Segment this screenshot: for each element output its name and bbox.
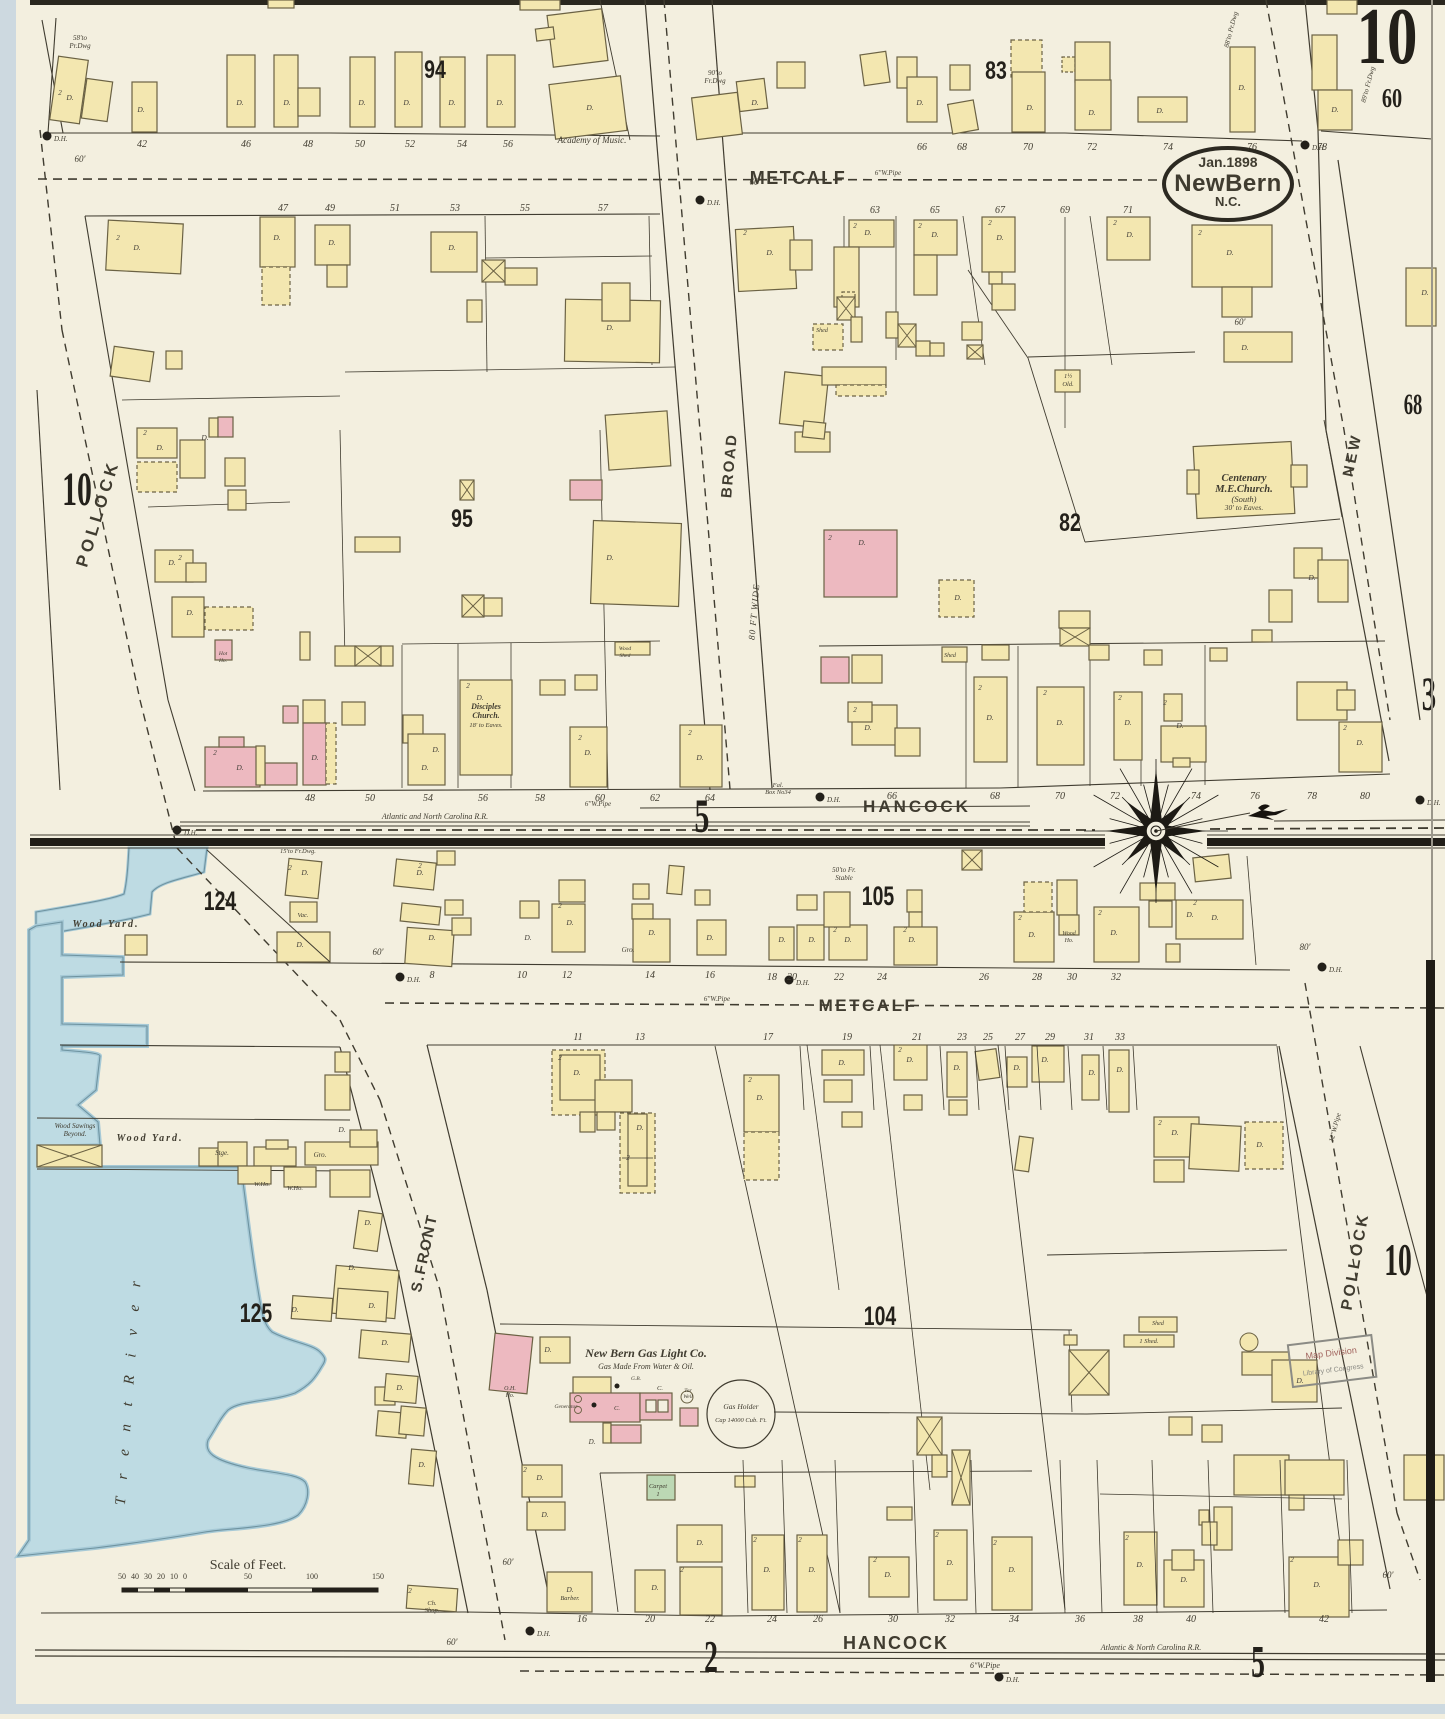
svg-text:100: 100 bbox=[306, 1572, 318, 1581]
svg-text:D.: D. bbox=[915, 98, 923, 107]
svg-text:D.: D. bbox=[583, 748, 591, 757]
svg-text:D.: D. bbox=[543, 1345, 551, 1354]
svg-text:28: 28 bbox=[1032, 972, 1042, 983]
svg-text:60': 60' bbox=[447, 1637, 459, 1647]
svg-text:76: 76 bbox=[1250, 791, 1260, 802]
svg-text:Ho.: Ho. bbox=[1064, 938, 1074, 944]
svg-text:D.H.: D.H. bbox=[1328, 966, 1343, 974]
svg-text:Carpet: Carpet bbox=[649, 1483, 667, 1490]
svg-text:D.: D. bbox=[857, 538, 865, 547]
svg-text:31: 31 bbox=[1083, 1032, 1094, 1043]
svg-text:D.: D. bbox=[1007, 1565, 1015, 1574]
svg-text:2: 2 bbox=[688, 729, 692, 737]
svg-text:32: 32 bbox=[944, 1614, 955, 1625]
svg-text:2: 2 bbox=[988, 219, 992, 227]
svg-text:19: 19 bbox=[842, 1032, 852, 1043]
svg-text:50: 50 bbox=[355, 139, 365, 150]
svg-text:2: 2 bbox=[898, 1046, 902, 1054]
svg-text:D.: D. bbox=[295, 940, 303, 949]
svg-text:2: 2 bbox=[918, 222, 922, 230]
svg-text:2: 2 bbox=[680, 1566, 684, 1574]
svg-text:2: 2 bbox=[833, 926, 837, 934]
svg-text:D.: D. bbox=[395, 1383, 403, 1392]
svg-text:70: 70 bbox=[1055, 791, 1065, 802]
svg-text:Gro.: Gro. bbox=[622, 946, 635, 954]
svg-text:D.H.: D.H. bbox=[406, 976, 421, 984]
svg-text:40: 40 bbox=[131, 1572, 139, 1581]
svg-text:D.: D. bbox=[945, 1558, 953, 1567]
svg-text:Ch.: Ch. bbox=[427, 1600, 437, 1607]
svg-text:1½: 1½ bbox=[1064, 373, 1072, 380]
svg-text:50: 50 bbox=[365, 793, 375, 804]
svg-text:0: 0 bbox=[183, 1572, 187, 1581]
svg-text:40: 40 bbox=[1186, 1614, 1196, 1625]
svg-text:38: 38 bbox=[1132, 1614, 1143, 1625]
svg-text:Pr.Dwg: Pr.Dwg bbox=[68, 42, 91, 50]
svg-text:Well: Well bbox=[683, 1394, 693, 1400]
svg-text:D.: D. bbox=[1115, 1065, 1123, 1074]
svg-text:48: 48 bbox=[303, 139, 313, 150]
svg-text:66: 66 bbox=[887, 791, 897, 802]
svg-text:HANCOCK: HANCOCK bbox=[843, 1633, 949, 1653]
svg-text:66: 66 bbox=[917, 142, 927, 153]
svg-text:D.: D. bbox=[1210, 913, 1218, 922]
svg-text:D.: D. bbox=[762, 1565, 770, 1574]
svg-text:Shed: Shed bbox=[1152, 1321, 1165, 1327]
svg-text:D.: D. bbox=[1330, 105, 1338, 114]
svg-text:60': 60' bbox=[1383, 1570, 1395, 1580]
svg-text:30: 30 bbox=[1066, 972, 1077, 983]
svg-text:D.: D. bbox=[1255, 1140, 1263, 1149]
svg-text:2: 2 bbox=[743, 229, 747, 237]
svg-text:58'to: 58'to bbox=[73, 34, 87, 42]
svg-text:D.: D. bbox=[1355, 738, 1363, 747]
svg-text:69: 69 bbox=[1060, 205, 1070, 216]
svg-text:Ho.: Ho. bbox=[218, 658, 227, 664]
svg-text:60': 60' bbox=[75, 154, 87, 164]
svg-text:D.: D. bbox=[1055, 718, 1063, 727]
svg-text:Shed: Shed bbox=[816, 328, 829, 334]
svg-text:57: 57 bbox=[598, 203, 609, 214]
svg-text:2: 2 bbox=[1198, 229, 1202, 237]
svg-text:D.: D. bbox=[605, 553, 613, 562]
svg-text:D.: D. bbox=[357, 98, 365, 107]
svg-text:D.: D. bbox=[420, 763, 428, 772]
svg-text:2: 2 bbox=[903, 926, 907, 934]
svg-text:D.: D. bbox=[750, 98, 758, 107]
svg-text:2: 2 bbox=[1125, 1534, 1129, 1542]
svg-text:60: 60 bbox=[595, 793, 605, 804]
svg-text:1 Shed.: 1 Shed. bbox=[1139, 1338, 1159, 1345]
svg-text:3: 3 bbox=[1422, 668, 1436, 721]
svg-text:68: 68 bbox=[990, 791, 1000, 802]
svg-text:D.: D. bbox=[1155, 106, 1163, 115]
svg-text:Academy of Music.: Academy of Music. bbox=[557, 135, 627, 145]
svg-text:D.: D. bbox=[695, 1538, 703, 1547]
svg-text:D.: D. bbox=[65, 93, 73, 102]
svg-text:2: 2 bbox=[178, 554, 182, 562]
svg-text:D.: D. bbox=[1295, 1376, 1303, 1385]
svg-text:D.: D. bbox=[272, 233, 280, 242]
svg-text:20: 20 bbox=[645, 1614, 655, 1625]
svg-text:Box No34: Box No34 bbox=[765, 789, 792, 796]
svg-text:Centenary: Centenary bbox=[1222, 473, 1267, 484]
svg-text:Disciples: Disciples bbox=[470, 702, 501, 711]
svg-text:30: 30 bbox=[144, 1572, 152, 1581]
svg-text:D.: D. bbox=[807, 1565, 815, 1574]
svg-text:Wood Sawings: Wood Sawings bbox=[55, 1122, 96, 1130]
svg-text:D.: D. bbox=[650, 1583, 658, 1592]
svg-text:80': 80' bbox=[1300, 942, 1312, 952]
svg-text:2: 2 bbox=[58, 89, 62, 97]
svg-text:34: 34 bbox=[1008, 1614, 1019, 1625]
svg-text:2: 2 bbox=[798, 1536, 802, 1544]
svg-text:2: 2 bbox=[1158, 1119, 1162, 1127]
svg-text:90'to: 90'to bbox=[708, 69, 722, 77]
svg-text:D.: D. bbox=[1027, 930, 1035, 939]
svg-text:13: 13 bbox=[635, 1032, 645, 1043]
svg-text:30: 30 bbox=[887, 1614, 898, 1625]
svg-text:D.: D. bbox=[363, 1218, 371, 1227]
svg-text:D.: D. bbox=[588, 1438, 596, 1446]
svg-text:D.H.: D.H. bbox=[1426, 799, 1441, 807]
svg-text:Scale of Feet.: Scale of Feet. bbox=[210, 1558, 287, 1573]
svg-text:Wood Yard.: Wood Yard. bbox=[116, 1133, 183, 1144]
svg-text:48: 48 bbox=[305, 793, 315, 804]
svg-text:14: 14 bbox=[645, 970, 655, 981]
svg-text:26: 26 bbox=[979, 972, 989, 983]
svg-text:G.B.: G.B. bbox=[631, 1376, 641, 1382]
svg-text:D.: D. bbox=[447, 98, 455, 107]
svg-text:2: 2 bbox=[853, 222, 857, 230]
svg-text:22: 22 bbox=[834, 972, 844, 983]
svg-text:D.H.: D.H. bbox=[53, 135, 68, 143]
svg-text:W.Ho.: W.Ho. bbox=[287, 1185, 303, 1192]
svg-text:D.: D. bbox=[167, 558, 175, 567]
svg-text:D.: D. bbox=[572, 1068, 580, 1077]
svg-text:105: 105 bbox=[862, 881, 894, 911]
svg-text:N.C.: N.C. bbox=[1215, 194, 1241, 209]
svg-text:D.: D. bbox=[1170, 1128, 1178, 1137]
svg-text:D.: D. bbox=[1125, 230, 1133, 239]
svg-text:D.: D. bbox=[1135, 1560, 1143, 1569]
svg-text:Generator: Generator bbox=[555, 1404, 579, 1410]
svg-text:D.: D. bbox=[337, 1125, 345, 1134]
svg-text:D.: D. bbox=[200, 433, 208, 442]
svg-text:16: 16 bbox=[577, 1614, 587, 1625]
svg-text:56: 56 bbox=[478, 793, 488, 804]
svg-text:C.: C. bbox=[614, 1405, 620, 1412]
svg-text:D.: D. bbox=[327, 238, 335, 247]
svg-text:NewBern: NewBern bbox=[1174, 170, 1282, 197]
svg-text:2: 2 bbox=[408, 1587, 412, 1595]
svg-text:D.: D. bbox=[475, 693, 483, 702]
svg-text:Church.: Church. bbox=[472, 711, 499, 720]
svg-text:D.: D. bbox=[1240, 343, 1248, 352]
svg-text:76: 76 bbox=[1247, 142, 1257, 153]
svg-text:29: 29 bbox=[1045, 1032, 1055, 1043]
svg-text:20: 20 bbox=[157, 1572, 165, 1581]
svg-text:82: 82 bbox=[1059, 509, 1081, 537]
svg-text:2: 2 bbox=[1290, 1556, 1294, 1564]
svg-text:D.: D. bbox=[647, 928, 655, 937]
svg-text:D.: D. bbox=[1179, 1575, 1187, 1584]
svg-text:10: 10 bbox=[170, 1572, 178, 1581]
svg-text:D.: D. bbox=[402, 98, 410, 107]
svg-text:22: 22 bbox=[705, 1614, 715, 1625]
svg-text:50: 50 bbox=[244, 1572, 252, 1581]
svg-text:Gas Made From Water & Oil.: Gas Made From Water & Oil. bbox=[598, 1362, 694, 1371]
svg-text:D.: D. bbox=[1420, 288, 1428, 297]
svg-text:68: 68 bbox=[957, 142, 967, 153]
svg-text:D.: D. bbox=[155, 443, 163, 452]
svg-text:Fal.: Fal. bbox=[772, 782, 784, 789]
svg-text:70: 70 bbox=[1023, 142, 1033, 153]
svg-text:D.: D. bbox=[282, 98, 290, 107]
svg-text:18' to Eaves.: 18' to Eaves. bbox=[469, 722, 503, 729]
svg-text:D.: D. bbox=[1225, 248, 1233, 257]
svg-text:D.: D. bbox=[863, 723, 871, 732]
svg-text:D.: D. bbox=[367, 1301, 375, 1310]
svg-text:63: 63 bbox=[870, 205, 880, 216]
svg-text:18: 18 bbox=[767, 972, 777, 983]
svg-text:78: 78 bbox=[1317, 142, 1327, 153]
svg-text:54: 54 bbox=[423, 793, 433, 804]
svg-text:D.: D. bbox=[930, 230, 938, 239]
svg-text:D.: D. bbox=[310, 753, 318, 762]
svg-text:Shop.: Shop. bbox=[425, 1607, 440, 1614]
svg-text:78: 78 bbox=[1307, 791, 1317, 802]
svg-text:23: 23 bbox=[957, 1032, 967, 1043]
svg-text:60': 60' bbox=[1235, 317, 1247, 327]
svg-text:16: 16 bbox=[705, 970, 715, 981]
svg-text:D.: D. bbox=[1175, 721, 1183, 730]
svg-text:55: 55 bbox=[520, 203, 530, 214]
svg-text:D.: D. bbox=[523, 933, 531, 942]
svg-text:Beyond.: Beyond. bbox=[64, 1130, 87, 1138]
svg-text:10: 10 bbox=[62, 462, 92, 516]
svg-text:2: 2 bbox=[1018, 914, 1022, 922]
svg-text:12: 12 bbox=[562, 970, 572, 981]
svg-text:Shed: Shed bbox=[944, 653, 957, 659]
svg-text:2: 2 bbox=[466, 682, 470, 690]
svg-text:Wood: Wood bbox=[1062, 931, 1076, 937]
svg-text:D.: D. bbox=[235, 763, 243, 772]
svg-text:D.: D. bbox=[540, 1510, 548, 1519]
svg-text:60': 60' bbox=[373, 947, 385, 957]
svg-text:62: 62 bbox=[650, 793, 660, 804]
svg-text:6"W.Pipe: 6"W.Pipe bbox=[875, 169, 901, 177]
svg-text:D.: D. bbox=[1087, 108, 1095, 117]
svg-text:D.H.: D.H. bbox=[183, 829, 198, 837]
svg-text:D.: D. bbox=[136, 105, 144, 114]
svg-text:36: 36 bbox=[1074, 1614, 1085, 1625]
svg-text:D.: D. bbox=[347, 1263, 355, 1272]
svg-text:D.: D. bbox=[427, 933, 435, 942]
svg-text:New Bern Gas Light Co.: New Bern Gas Light Co. bbox=[584, 1346, 707, 1360]
svg-text:71: 71 bbox=[1123, 205, 1133, 216]
svg-text:2: 2 bbox=[828, 534, 832, 542]
svg-text:Atlantic & North Carolina R.R.: Atlantic & North Carolina R.R. bbox=[1100, 1643, 1202, 1652]
svg-text:D.: D. bbox=[290, 1305, 298, 1314]
svg-text:2: 2 bbox=[143, 429, 147, 437]
svg-text:Old.: Old. bbox=[1062, 381, 1074, 388]
svg-text:D.: D. bbox=[807, 935, 815, 944]
svg-text:D.: D. bbox=[777, 935, 785, 944]
svg-text:2: 2 bbox=[748, 1076, 752, 1084]
svg-text:64: 64 bbox=[705, 793, 715, 804]
svg-text:D.: D. bbox=[705, 933, 713, 942]
svg-text:50'to Fr.: 50'to Fr. bbox=[832, 866, 856, 874]
svg-text:2: 2 bbox=[753, 1536, 757, 1544]
svg-text:D.: D. bbox=[883, 1570, 891, 1579]
svg-text:68: 68 bbox=[1404, 389, 1423, 421]
svg-text:2: 2 bbox=[558, 902, 562, 910]
svg-text:D.: D. bbox=[585, 103, 593, 112]
svg-text:6"W.Pipe: 6"W.Pipe bbox=[970, 1661, 1000, 1670]
svg-text:Wood: Wood bbox=[619, 646, 632, 652]
svg-text:2: 2 bbox=[1043, 689, 1047, 697]
svg-text:50: 50 bbox=[118, 1572, 126, 1581]
svg-text:83: 83 bbox=[985, 57, 1007, 85]
svg-text:D.: D. bbox=[447, 243, 455, 252]
svg-text:D.: D. bbox=[635, 1123, 643, 1132]
svg-text:26: 26 bbox=[813, 1614, 823, 1625]
svg-text:60: 60 bbox=[1382, 84, 1402, 113]
svg-text:Jan.1898: Jan.1898 bbox=[1198, 154, 1257, 170]
svg-text:D.: D. bbox=[837, 1058, 845, 1067]
svg-text:2: 2 bbox=[704, 1632, 718, 1683]
svg-text:D.: D. bbox=[1025, 103, 1033, 112]
svg-text:METCALF: METCALF bbox=[819, 996, 918, 1015]
svg-text:2: 2 bbox=[523, 1466, 527, 1474]
svg-text:D.H.: D.H. bbox=[795, 979, 810, 987]
svg-text:2: 2 bbox=[558, 1054, 562, 1062]
svg-text:2: 2 bbox=[288, 864, 292, 872]
svg-text:150: 150 bbox=[372, 1572, 384, 1581]
svg-text:Ho.: Ho. bbox=[505, 1393, 515, 1399]
svg-text:65: 65 bbox=[930, 205, 940, 216]
svg-text:D.: D. bbox=[907, 935, 915, 944]
svg-text:D.H.: D.H. bbox=[826, 796, 841, 804]
svg-text:72: 72 bbox=[1087, 142, 1097, 153]
svg-text:D.: D. bbox=[535, 1473, 543, 1482]
svg-text:5: 5 bbox=[1251, 1637, 1265, 1688]
svg-text:D.: D. bbox=[1123, 718, 1131, 727]
svg-text:Gro.: Gro. bbox=[314, 1151, 327, 1159]
svg-text:D.H.: D.H. bbox=[706, 199, 721, 207]
svg-text:27: 27 bbox=[1015, 1032, 1026, 1043]
svg-text:2: 2 bbox=[935, 1531, 939, 1539]
svg-text:25: 25 bbox=[983, 1032, 993, 1043]
svg-text:2: 2 bbox=[418, 862, 422, 870]
svg-text:42: 42 bbox=[137, 139, 147, 150]
svg-text:W.Ho.: W.Ho. bbox=[254, 1181, 270, 1188]
svg-text:10: 10 bbox=[517, 970, 527, 981]
svg-text:94: 94 bbox=[424, 56, 446, 84]
svg-text:80: 80 bbox=[1360, 791, 1370, 802]
svg-text:D.: D. bbox=[843, 935, 851, 944]
svg-text:17: 17 bbox=[763, 1032, 774, 1043]
svg-text:2: 2 bbox=[1118, 694, 1122, 702]
svg-text:67: 67 bbox=[995, 205, 1006, 216]
svg-text:Atlantic and North Carolina R.: Atlantic and North Carolina R.R. bbox=[381, 812, 488, 821]
svg-text:2: 2 bbox=[578, 734, 582, 742]
svg-text:METCALF: METCALF bbox=[750, 168, 846, 188]
svg-text:53: 53 bbox=[450, 203, 460, 214]
svg-text:6"W.Pipe: 6"W.Pipe bbox=[704, 995, 730, 1003]
svg-text:HANCOCK: HANCOCK bbox=[863, 797, 971, 816]
svg-text:11: 11 bbox=[573, 1032, 582, 1043]
svg-text:47: 47 bbox=[278, 203, 289, 214]
svg-text:2: 2 bbox=[978, 684, 982, 692]
svg-text:D.: D. bbox=[755, 1093, 763, 1102]
svg-text:C.: C. bbox=[657, 1385, 663, 1392]
svg-text:D.: D. bbox=[132, 243, 140, 252]
svg-text:30' to Eaves.: 30' to Eaves. bbox=[1224, 503, 1264, 512]
svg-text:15'to Fr.Dwg.: 15'to Fr.Dwg. bbox=[280, 848, 316, 855]
svg-text:56: 56 bbox=[503, 139, 513, 150]
svg-text:104: 104 bbox=[864, 1301, 896, 1331]
svg-text:124: 124 bbox=[204, 886, 236, 916]
svg-text:60': 60' bbox=[750, 177, 762, 187]
svg-text:D.H.: D.H. bbox=[536, 1630, 551, 1638]
svg-text:24: 24 bbox=[877, 972, 887, 983]
svg-text:95: 95 bbox=[451, 505, 473, 533]
svg-text:Fr.Dwg: Fr.Dwg bbox=[703, 77, 726, 85]
svg-text:D.: D. bbox=[985, 713, 993, 722]
svg-text:8: 8 bbox=[430, 970, 435, 981]
svg-text:125: 125 bbox=[240, 1298, 272, 1328]
svg-text:D.: D. bbox=[1307, 573, 1315, 582]
svg-text:51: 51 bbox=[390, 203, 400, 214]
svg-text:Barber.: Barber. bbox=[560, 1595, 580, 1602]
svg-text:2: 2 bbox=[626, 1154, 630, 1162]
svg-text:D.: D. bbox=[1237, 83, 1245, 92]
svg-text:33: 33 bbox=[1114, 1032, 1125, 1043]
svg-text:D.: D. bbox=[431, 745, 439, 754]
svg-text:72: 72 bbox=[1110, 791, 1120, 802]
svg-text:32: 32 bbox=[1110, 972, 1121, 983]
svg-text:Gas Holder: Gas Holder bbox=[723, 1402, 758, 1411]
svg-text:D.: D. bbox=[1087, 1068, 1095, 1077]
svg-text:49: 49 bbox=[325, 203, 335, 214]
svg-text:2: 2 bbox=[873, 1556, 877, 1564]
svg-text:D.: D. bbox=[695, 753, 703, 762]
svg-text:D.: D. bbox=[1185, 910, 1193, 919]
svg-text:Cap 14000 Cub. Ft.: Cap 14000 Cub. Ft. bbox=[715, 1417, 767, 1424]
svg-text:42: 42 bbox=[1319, 1614, 1329, 1625]
svg-text:D.: D. bbox=[952, 1063, 960, 1072]
svg-text:D.: D. bbox=[1312, 1580, 1320, 1589]
svg-text:D.: D. bbox=[417, 1460, 425, 1469]
svg-text:20: 20 bbox=[787, 972, 797, 983]
svg-text:2: 2 bbox=[213, 749, 217, 757]
svg-text:10: 10 bbox=[1357, 0, 1418, 81]
svg-text:D.: D. bbox=[380, 1338, 388, 1347]
svg-text:D.H.: D.H. bbox=[1005, 1676, 1020, 1684]
svg-text:2: 2 bbox=[1343, 724, 1347, 732]
svg-text:58: 58 bbox=[535, 793, 545, 804]
svg-text:D.: D. bbox=[565, 1585, 573, 1594]
svg-text:O.H.: O.H. bbox=[504, 1386, 516, 1392]
svg-text:2: 2 bbox=[1163, 699, 1167, 707]
svg-text:Vac.: Vac. bbox=[297, 912, 308, 919]
svg-text:10: 10 bbox=[1384, 1235, 1412, 1286]
svg-text:D.: D. bbox=[953, 593, 961, 602]
svg-text:Shed: Shed bbox=[620, 653, 631, 659]
svg-text:D.: D. bbox=[235, 98, 243, 107]
